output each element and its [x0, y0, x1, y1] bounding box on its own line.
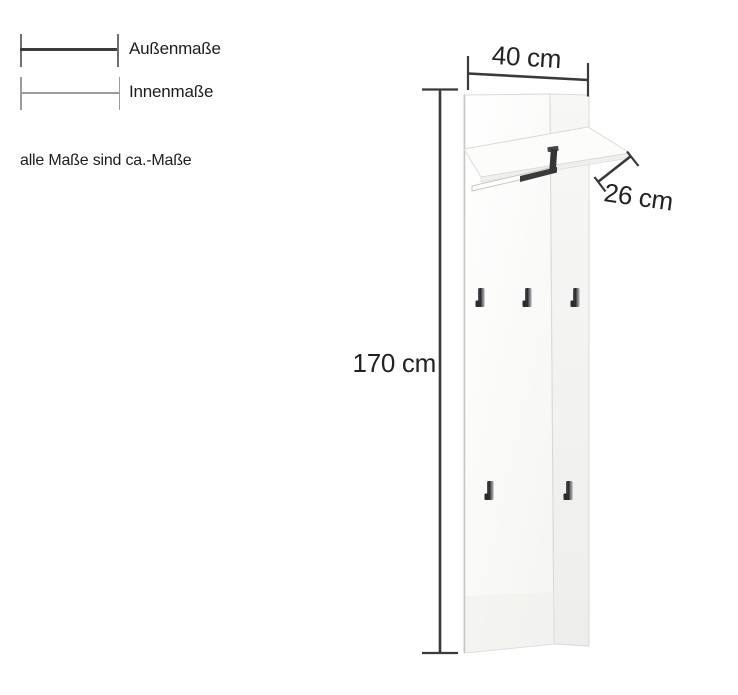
height-dimension-label: 170 cm [353, 348, 436, 378]
panel-gloss-reflection [464, 592, 554, 653]
hook-tip [485, 494, 489, 501]
product-dimension-diagram: Außenmaße Innenmaße alle Maße sind ca.-M… [0, 0, 738, 695]
width-dimension-label: 40 cm [491, 40, 562, 74]
width-dimension-line [468, 74, 588, 81]
hook-tip [571, 301, 575, 308]
hook-tip [476, 301, 480, 308]
hook-tip [564, 494, 568, 501]
depth-dimension-label: 26 cm [602, 177, 675, 216]
panel-side-face [550, 94, 589, 646]
coat-rack-figure: 170 cm 40 cm 26 cm [0, 0, 738, 695]
hook-tip [523, 301, 527, 308]
